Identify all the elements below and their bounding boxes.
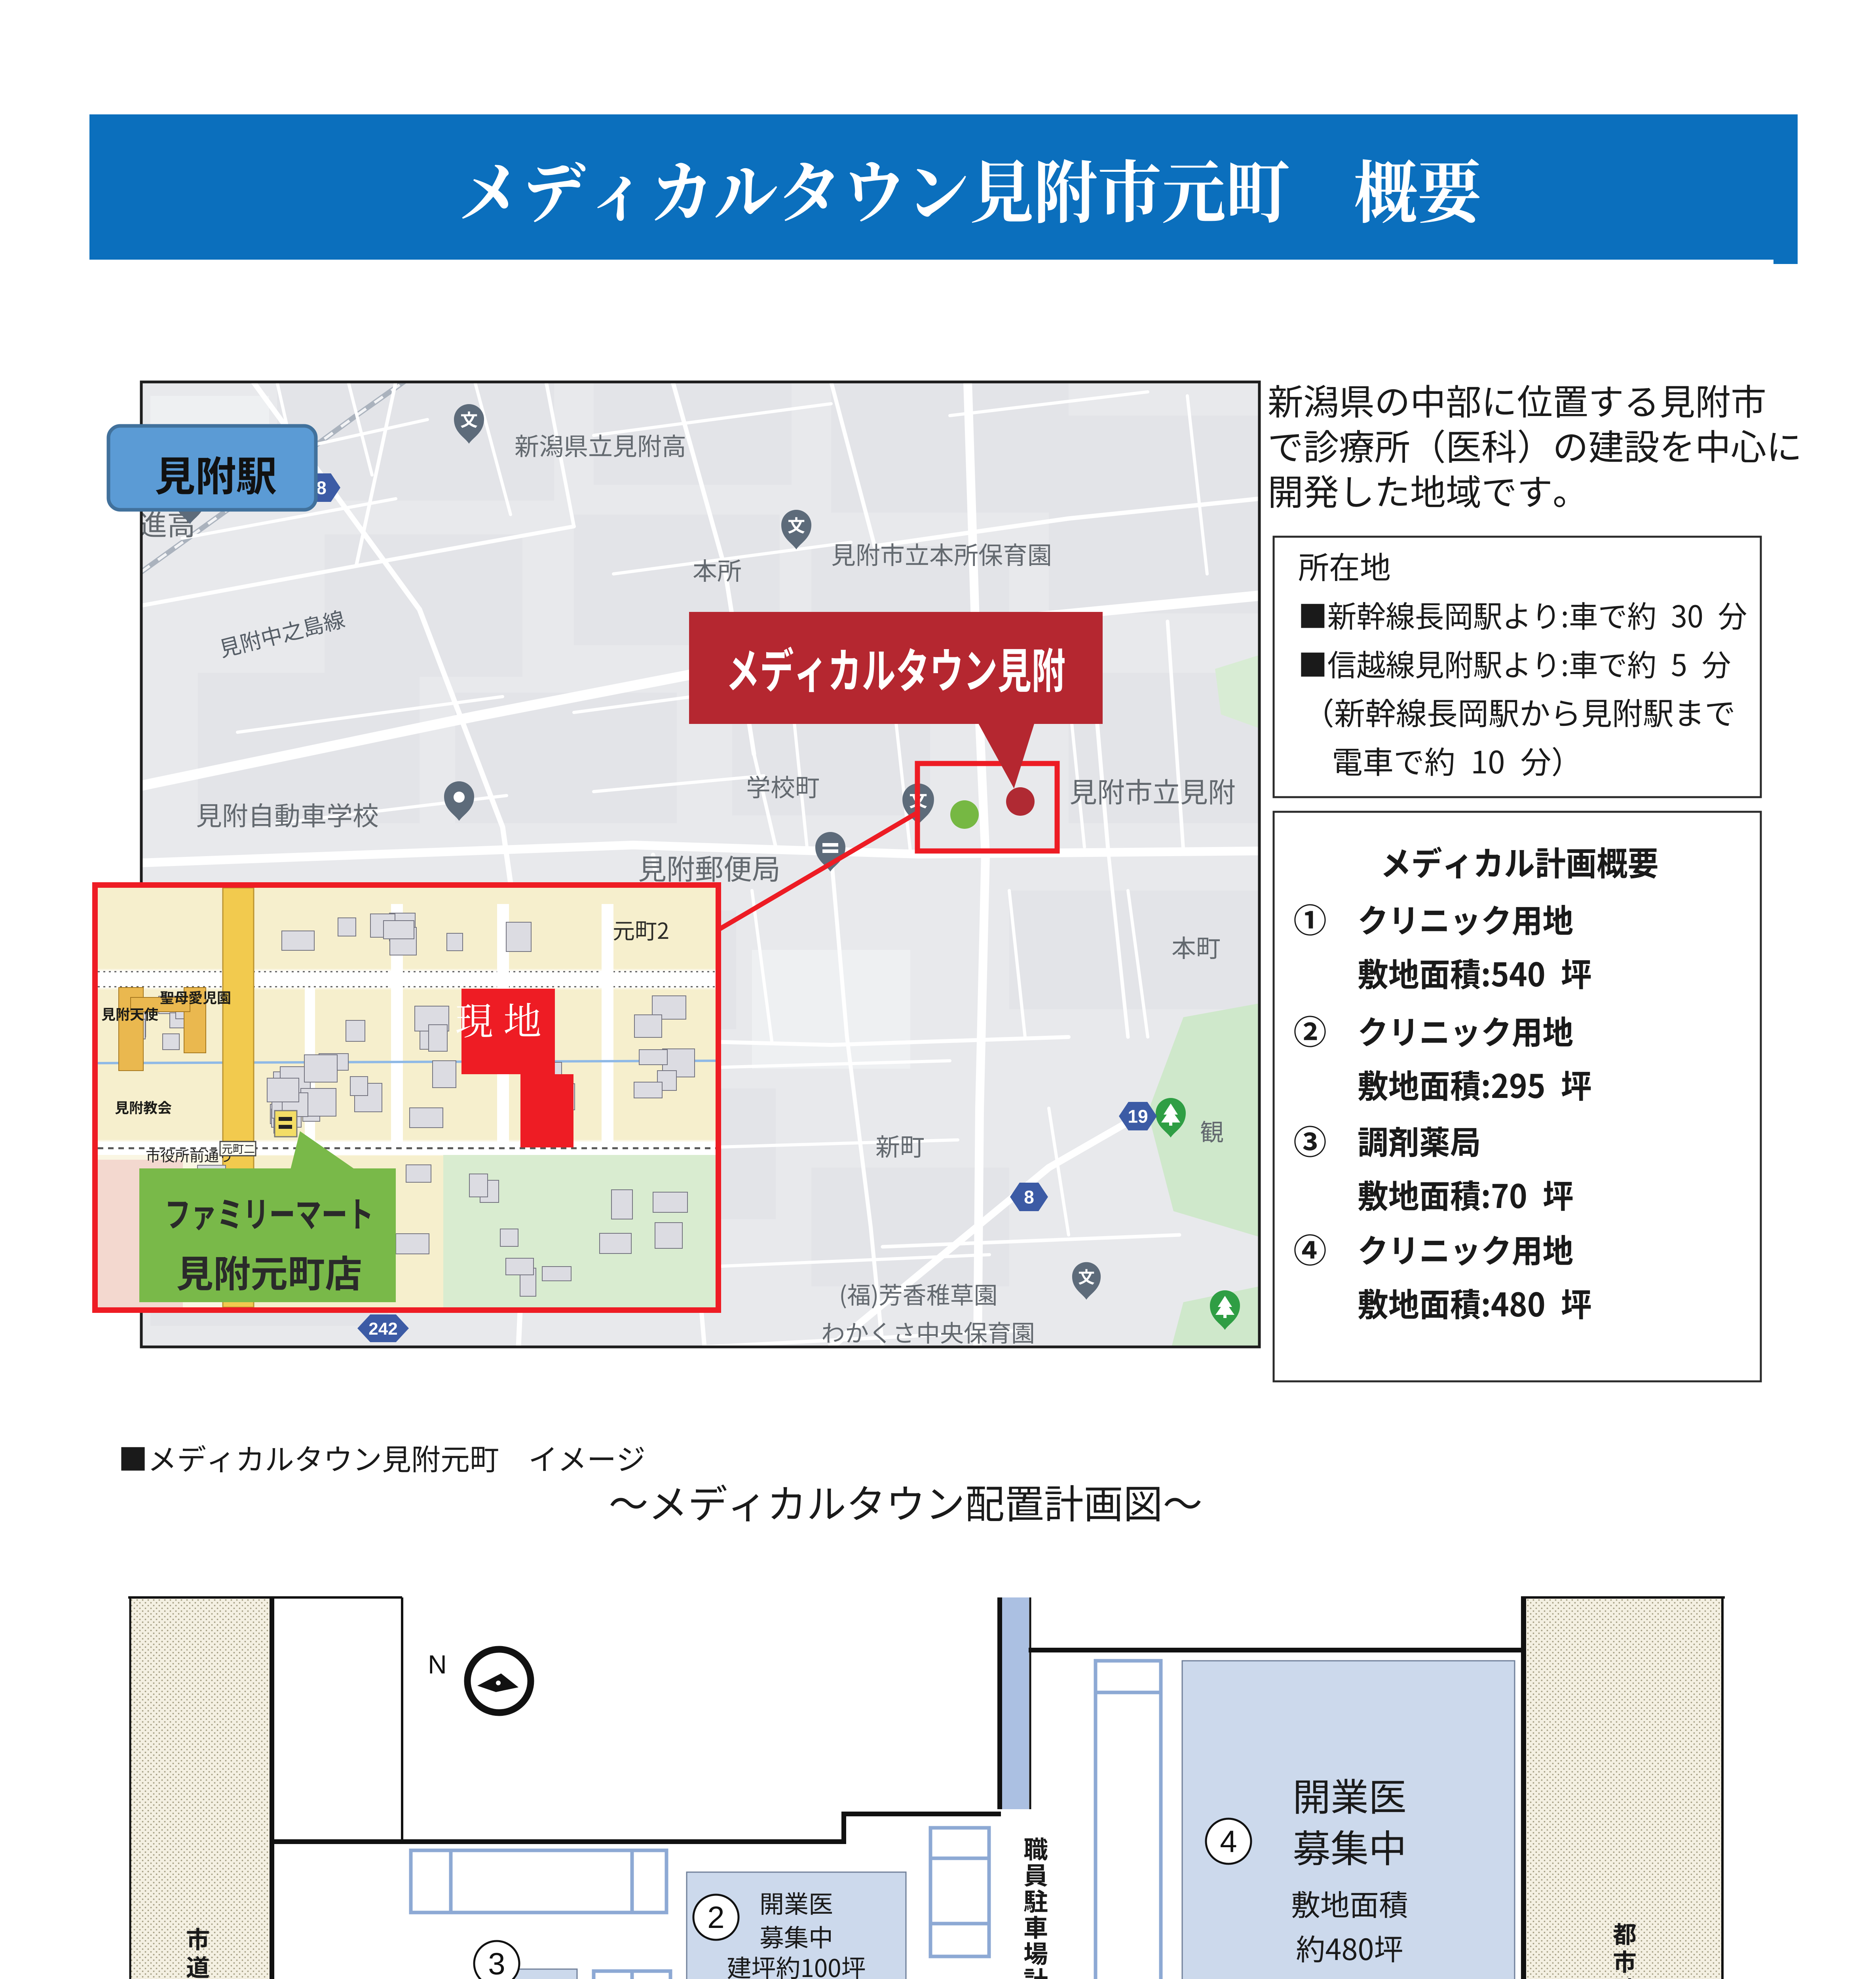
svg-text:19: 19 [1128,1106,1148,1127]
svg-text:242: 242 [368,1319,397,1339]
svg-text:8: 8 [316,478,327,498]
svg-text:3: 3 [488,1946,505,1979]
svg-text:2: 2 [707,1900,724,1935]
svg-text:8: 8 [1024,1187,1034,1208]
svg-text:4: 4 [1220,1824,1237,1859]
svg-text:N: N [428,1650,447,1679]
